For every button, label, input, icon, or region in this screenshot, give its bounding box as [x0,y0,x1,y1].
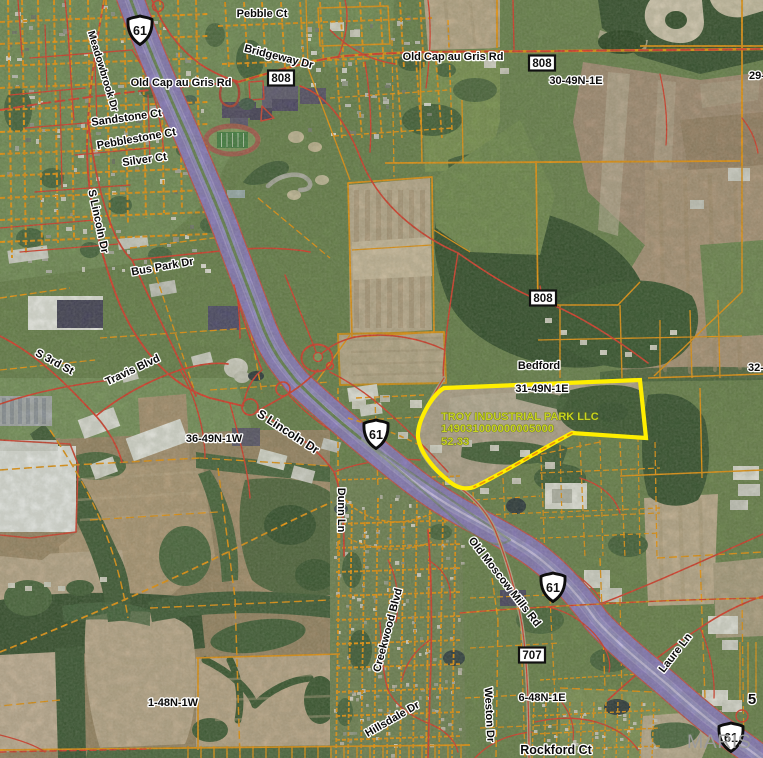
svg-text:5: 5 [748,691,756,708]
svg-text:Dunn Ln: Dunn Ln [335,488,347,533]
svg-text:Pebble Ct: Pebble Ct [237,8,288,20]
svg-text:32-: 32- [748,362,763,374]
svg-text:TROY INDUSTRIAL PARK LLC: TROY INDUSTRIAL PARK LLC [441,411,599,423]
svg-text:808: 808 [271,73,291,85]
svg-text:Old Cap au Gris Rd: Old Cap au Gris Rd [131,77,232,89]
svg-text:52.33: 52.33 [441,436,469,448]
svg-text:808: 808 [532,58,552,70]
svg-text:30-49N-1E: 30-49N-1E [549,75,602,87]
svg-text:61: 61 [133,24,147,38]
svg-text:Bedford: Bedford [518,360,560,372]
svg-text:6-48N-1E: 6-48N-1E [518,692,565,704]
svg-text:Old Cap au Gris Rd: Old Cap au Gris Rd [403,51,504,63]
svg-text:61: 61 [369,428,383,442]
svg-text:707: 707 [522,650,541,662]
svg-text:31-49N-1E: 31-49N-1E [515,383,568,395]
svg-text:1-48N-1W: 1-48N-1W [148,697,199,709]
svg-text:36-49N-1W: 36-49N-1W [186,433,243,445]
svg-text:29-: 29- [749,70,763,82]
svg-text:61: 61 [546,581,560,595]
svg-text:Rockford Ct: Rockford Ct [520,743,592,757]
svg-text:808: 808 [533,293,553,305]
svg-text:MARIS: MARIS [687,731,751,753]
svg-text:149031000000005000: 149031000000005000 [441,423,554,435]
